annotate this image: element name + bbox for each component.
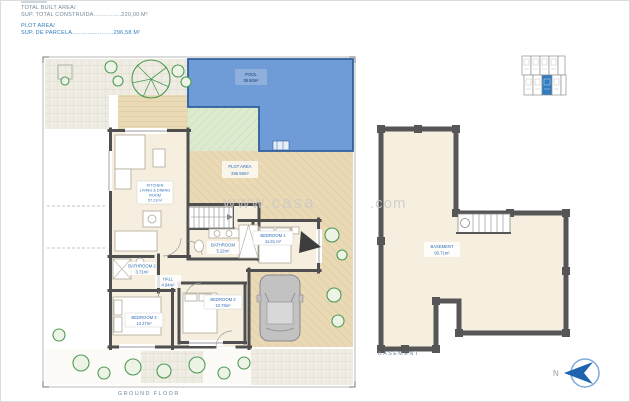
lawn	[188, 107, 259, 151]
sofa	[115, 135, 145, 169]
shrub-icon	[325, 228, 339, 242]
pilaster	[562, 209, 570, 217]
pilaster	[432, 297, 440, 305]
kitchen-counter	[115, 231, 157, 251]
pilaster	[377, 237, 385, 245]
shrub-icon	[189, 357, 205, 373]
shrub-icon	[337, 250, 347, 260]
shrub-icon	[73, 355, 89, 371]
kitchen-label-1: KITCHEN	[147, 184, 164, 188]
shrub-icon	[53, 329, 65, 341]
pilaster	[562, 267, 570, 275]
site-key-map	[522, 56, 566, 95]
bedroom2-label: BEDROOM 2	[210, 297, 236, 302]
bedroom1-area: 11.61 m²	[265, 239, 282, 244]
basement-walls	[381, 129, 566, 349]
shrub-icon	[61, 77, 69, 85]
mirror	[299, 295, 303, 302]
stairs-outline	[189, 207, 233, 228]
basement-label: BASEMENT	[430, 244, 453, 249]
shrub-icon	[218, 367, 230, 379]
basement-plan: BASEMENT 93.71m²	[377, 125, 570, 353]
driveway	[251, 349, 353, 385]
sofa-chaise	[115, 169, 131, 189]
ground-stairs	[189, 207, 233, 228]
floorplan-page: TOTAL BUILT AREA/ SUP. TOTAL CONSTRUIDA.…	[0, 0, 630, 402]
ground-floor-caption: GROUND FLOOR	[118, 391, 180, 397]
plotarea-area: 296.58m²	[231, 171, 249, 176]
pillow	[114, 317, 122, 332]
hall-area: 4.94m²	[161, 283, 175, 288]
shrub-icon	[238, 357, 250, 369]
shrub-icon	[172, 65, 184, 77]
toilet	[195, 240, 204, 252]
bathroom-label: BATHROOM	[211, 243, 235, 248]
basement-area: 93.71m²	[434, 251, 450, 256]
bathroom2-area: 3.71m²	[135, 270, 149, 275]
hall-label: HALL	[163, 277, 174, 282]
pilaster	[452, 125, 460, 133]
basement-caption: BASEMENT	[378, 351, 419, 357]
shrub-icon	[125, 359, 141, 375]
shrub-icon	[327, 288, 341, 302]
car-roof	[267, 302, 293, 324]
basement-stairs	[456, 214, 511, 233]
kitchen-label-area: 57.21m²	[148, 199, 163, 203]
pilaster	[432, 345, 440, 353]
pilaster	[455, 329, 463, 337]
pool-area: 39.50m²	[243, 78, 259, 83]
shrub-icon	[113, 76, 123, 86]
plotarea-label: PLOT AREA	[228, 164, 251, 169]
shrub-icon	[181, 77, 191, 87]
floor-plan-canvas: POOL 39.50m²	[1, 1, 630, 402]
bedroom1-label: BEDROOM 1	[260, 233, 286, 238]
pilaster	[414, 125, 422, 133]
vanity-counter	[209, 229, 239, 238]
bedroom3-label: BEDROOM 3	[131, 315, 157, 320]
kitchen-label-2: LIVING & DINING	[140, 189, 170, 193]
bathroom2-label: BATHROOM 2	[128, 264, 156, 269]
shrub-icon	[332, 315, 344, 327]
kitchen-island	[143, 211, 161, 227]
pool-steps	[273, 141, 289, 150]
north-label: N	[553, 369, 559, 378]
mirror	[257, 295, 261, 302]
pool-label: POOL	[245, 72, 257, 77]
stair-post	[461, 219, 470, 228]
coffee-table	[153, 149, 165, 167]
shrub-icon	[98, 367, 110, 379]
kitchen-label-3: ROOM	[149, 194, 161, 198]
shrub-icon	[157, 364, 171, 378]
shrub-icon	[105, 61, 117, 73]
bedroom2-area: 10.76m²	[215, 303, 231, 308]
pillow	[185, 294, 197, 301]
key-plot	[558, 56, 565, 75]
bedroom3-area: 13.27m²	[136, 321, 152, 326]
ground-floor-plan: POOL 39.50m²	[43, 57, 355, 387]
side-paving	[45, 95, 109, 129]
north-arrow: N	[553, 359, 599, 387]
pilaster	[377, 125, 385, 133]
pilaster	[562, 329, 570, 337]
car-icon	[257, 275, 303, 341]
pillow	[114, 300, 122, 315]
key-plot	[561, 75, 566, 95]
bathroom-area: 5.22m²	[216, 249, 230, 254]
